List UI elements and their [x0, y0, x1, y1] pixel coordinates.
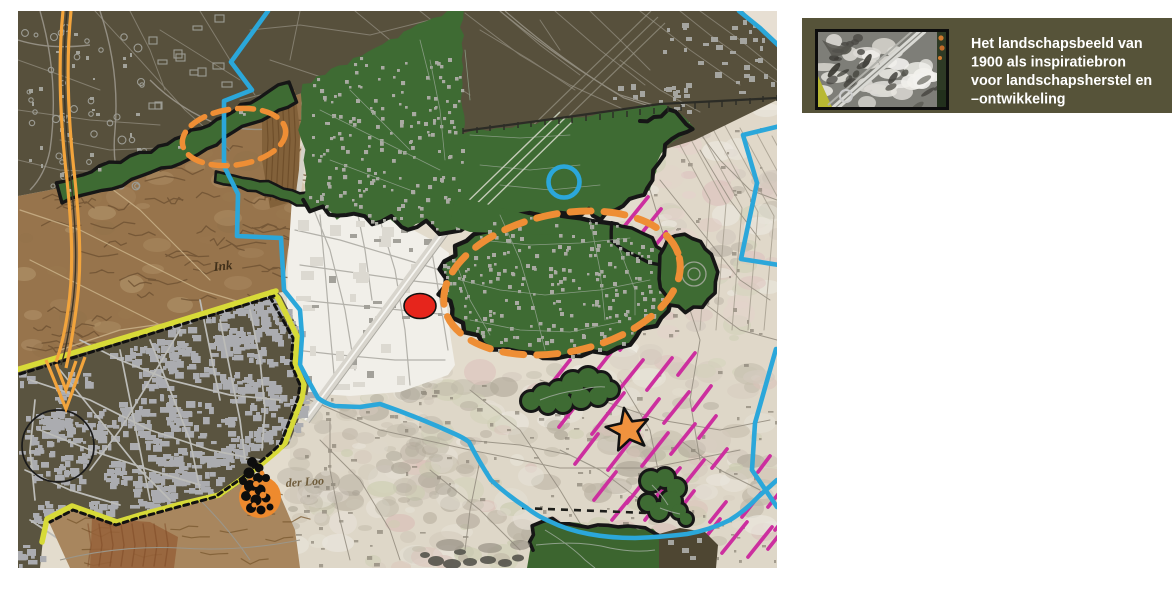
svg-text:–ontwikkeling: –ontwikkeling	[971, 92, 1066, 108]
svg-text:Het landschapsbeeld van: Het landschapsbeeld van	[971, 36, 1143, 52]
svg-text:1900 als inspiratiebron: 1900 als inspiratiebron	[971, 55, 1126, 71]
svg-text:voor landschapsherstel en: voor landschapsherstel en	[971, 73, 1152, 89]
svg-text:der Loo: der Loo	[285, 473, 324, 490]
svg-text:Ink: Ink	[212, 257, 234, 274]
